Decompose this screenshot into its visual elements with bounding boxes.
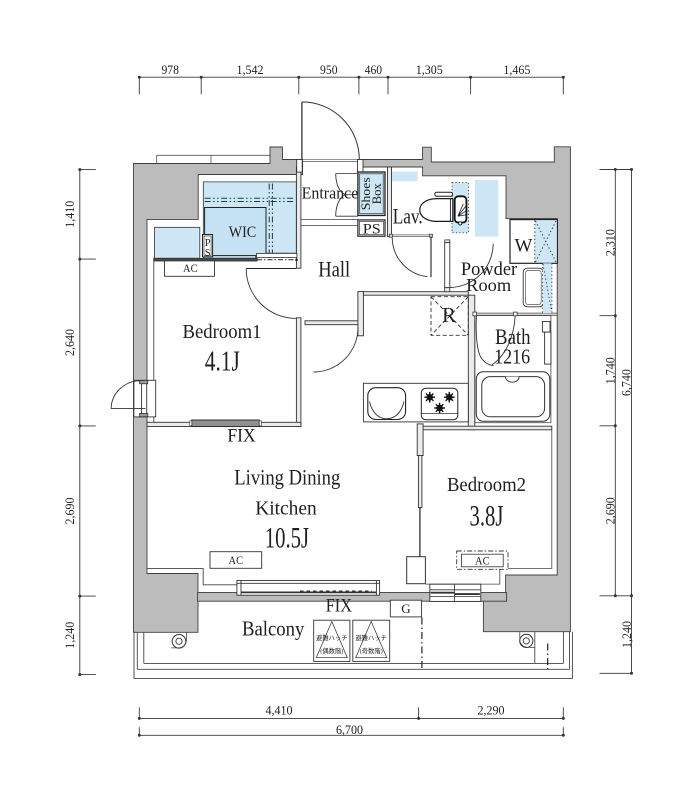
svg-text:950: 950 — [320, 63, 338, 77]
svg-text:PS: PS — [363, 222, 381, 238]
svg-text:1,240: 1,240 — [63, 622, 77, 649]
svg-text:AC: AC — [229, 553, 244, 567]
svg-text:2,690: 2,690 — [63, 498, 77, 525]
svg-text:10.5J: 10.5J — [265, 522, 310, 555]
svg-text:3.8J: 3.8J — [470, 500, 504, 533]
svg-text:Lav.: Lav. — [393, 204, 423, 229]
svg-text:6,740: 6,740 — [620, 369, 634, 396]
svg-text:Living Dining: Living Dining — [234, 464, 340, 489]
svg-text:1,465: 1,465 — [503, 63, 530, 77]
svg-text:AC: AC — [183, 261, 198, 275]
svg-text:WIC: WIC — [229, 223, 257, 241]
svg-text:2,690: 2,690 — [604, 497, 618, 524]
svg-text:G: G — [401, 601, 410, 616]
svg-text:460: 460 — [365, 63, 383, 77]
svg-text:避難ハッチ: 避難ハッチ — [355, 633, 386, 642]
svg-text:Bedroom2: Bedroom2 — [447, 475, 526, 496]
svg-text:避難ハッチ: 避難ハッチ — [316, 633, 347, 642]
svg-text:Balcony: Balcony — [242, 616, 305, 640]
svg-text:Kitchen: Kitchen — [255, 499, 317, 520]
svg-text:4.1J: 4.1J — [205, 346, 240, 377]
svg-text:2,640: 2,640 — [63, 329, 77, 356]
svg-text:2,310: 2,310 — [604, 229, 618, 256]
svg-text:Box: Box — [369, 183, 384, 204]
svg-text:FIX: FIX — [326, 595, 353, 616]
svg-text:(奇数階): (奇数階) — [360, 646, 383, 655]
svg-text:1,240: 1,240 — [620, 621, 634, 648]
svg-text:2,290: 2,290 — [478, 704, 505, 718]
svg-text:978: 978 — [161, 63, 179, 77]
svg-text:1216: 1216 — [494, 345, 530, 369]
svg-text:W: W — [515, 236, 533, 257]
svg-text:S: S — [205, 248, 211, 259]
svg-text:(偶数階): (偶数階) — [320, 646, 343, 655]
svg-text:1,305: 1,305 — [416, 63, 443, 77]
svg-text:4,410: 4,410 — [266, 704, 293, 718]
svg-text:Bedroom1: Bedroom1 — [183, 322, 262, 343]
svg-text:1,410: 1,410 — [63, 201, 77, 228]
svg-text:6,700: 6,700 — [336, 723, 363, 737]
svg-text:1,542: 1,542 — [237, 63, 264, 77]
svg-text:Entrance: Entrance — [302, 184, 359, 203]
svg-text:FIX: FIX — [227, 425, 256, 446]
svg-text:Room: Room — [466, 275, 511, 295]
svg-text:AC: AC — [475, 553, 490, 567]
svg-text:Hall: Hall — [318, 257, 350, 282]
svg-text:R: R — [442, 303, 456, 327]
svg-text:1,740: 1,740 — [604, 357, 618, 384]
